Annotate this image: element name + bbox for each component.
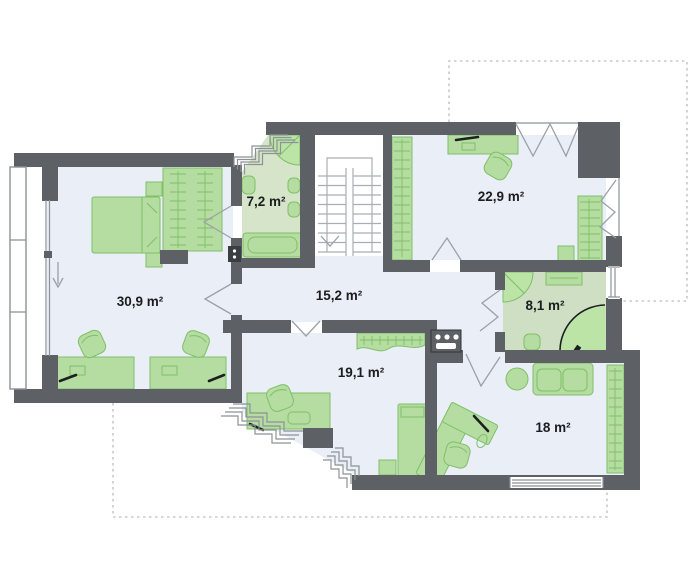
wall [505,350,606,363]
room-area-label: 15,2 m² [316,288,363,303]
floor-plan: 30,9 m² 7,2 m² 15,2 m² 22,9 m² 8,1 m² 19… [0,0,700,575]
appliance-box [431,330,461,352]
wall [352,475,432,490]
cabinet [558,246,574,262]
wall [383,135,392,267]
balcony-strip [10,167,26,389]
wall [578,122,620,178]
wardrobe [578,196,602,262]
wall [495,272,505,290]
desk [448,135,518,154]
room-area-label: 19,1 m² [338,365,385,380]
wall [231,165,242,206]
room-area-label: 8,1 m² [525,298,565,313]
floor-plan-page: 30,9 m² 7,2 m² 15,2 m² 22,9 m² 8,1 m² 19… [0,0,700,575]
desk [150,357,226,389]
window-bathroom-right [608,266,620,299]
desk [57,357,134,389]
nightstand [146,182,162,196]
staircase [318,158,381,256]
wall [322,320,425,333]
window-mullion [44,251,52,258]
floor-hall-under-stairs [315,256,383,268]
wall [624,350,640,490]
sink [242,176,255,194]
stair-center-gap [346,168,353,256]
room-area-label: 18 m² [535,420,571,435]
wardrobe [163,168,222,251]
ventilation-box [228,246,241,262]
wall [495,332,505,352]
toilet [288,178,300,193]
wall [42,167,58,201]
toilet [524,334,540,350]
window-bottom [510,477,603,488]
wall [383,260,430,272]
round-table [506,368,528,390]
wall [266,122,516,135]
wall [160,250,188,264]
wardrobe [607,365,624,473]
wall [14,153,234,167]
room-area-label: 30,9 m² [117,294,164,309]
wall [460,260,606,272]
nightstand [379,460,396,475]
wall [231,315,242,403]
bidet [288,202,300,217]
nightstand [146,253,162,267]
wall [606,298,622,357]
wall [42,355,58,389]
room-area-label: 22,9 m² [478,189,525,204]
wall [14,389,234,403]
room-area-label: 7,2 m² [246,194,286,209]
wall [606,236,622,267]
wall [300,135,315,265]
wall-corner-pillar [303,428,333,448]
wall [242,258,315,268]
